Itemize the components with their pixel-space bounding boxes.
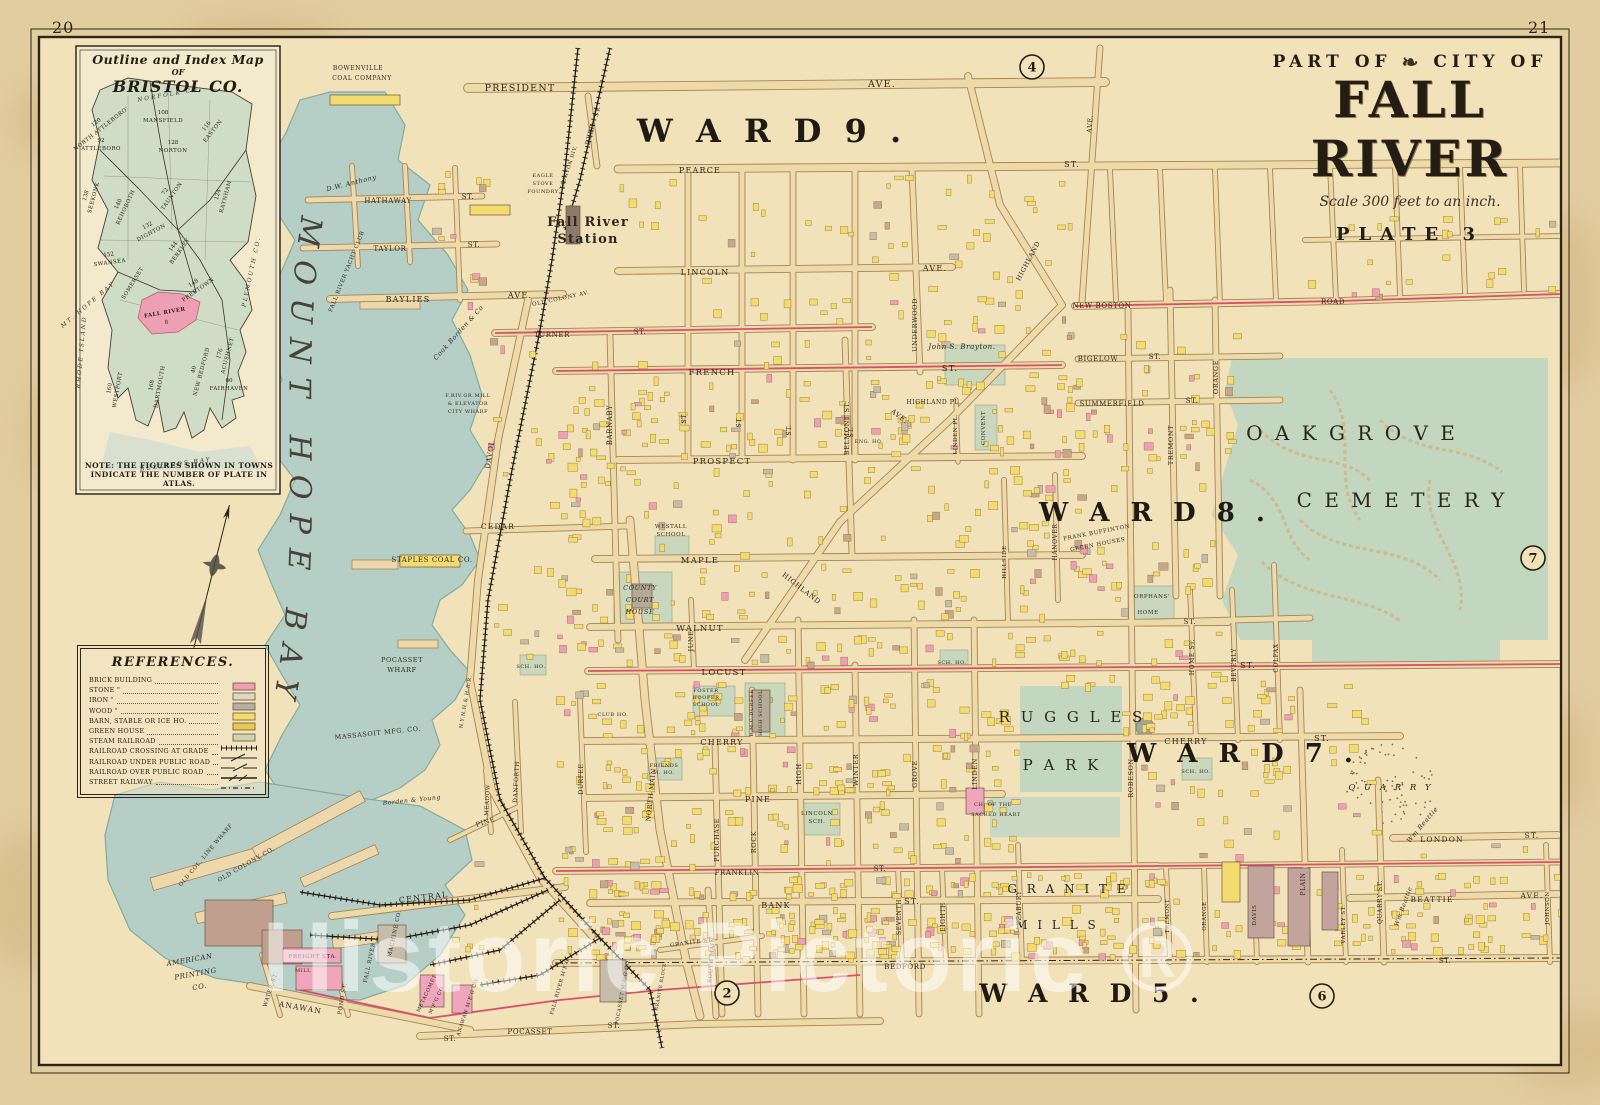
title-part2: CITY OF — [1433, 52, 1547, 72]
inset-title: Outline and Index Map OF BRISTOL CO. — [88, 52, 268, 96]
map-label: SCH. HO. — [937, 660, 966, 666]
area-label: G R A N I T E — [1007, 882, 1128, 896]
inset-map: NORTH ATTLEBORO'120MANSFIELD108EASTON116… — [59, 46, 280, 494]
reference-leader — [212, 748, 218, 755]
map-label: BOWENVILLE — [333, 65, 383, 72]
map-label: ROCK — [750, 831, 758, 853]
map-label: ST. — [634, 328, 646, 336]
map-label: AVE. — [1519, 891, 1543, 900]
map-label: JOHNSON — [1545, 891, 1551, 926]
map-label: ROAD — [1321, 298, 1345, 306]
map-label: ENG. HO. — [855, 439, 884, 445]
page-number-left: 20 — [52, 18, 74, 37]
map-label: John S. Brayton. — [926, 343, 995, 351]
map-scale-note: Scale 300 feet to an inch. — [1255, 194, 1565, 210]
map-label: PEARCE — [679, 166, 721, 175]
map-label: ST. — [444, 1035, 456, 1043]
map-label: HOME — [1137, 610, 1158, 616]
map-label: FOUNDRY — [527, 189, 558, 195]
map-label: SCH. HO. — [1181, 769, 1210, 775]
map-label: ST. — [736, 417, 743, 428]
title-part1: PART OF — [1273, 52, 1392, 72]
map-label: COURT — [626, 596, 654, 604]
map-label: WESTALL — [655, 524, 687, 530]
map-label: ST. — [1524, 831, 1539, 840]
reference-symbol-cross — [221, 747, 257, 756]
map-label: ST. — [681, 413, 688, 424]
references-rows: BRICK BUILDINGSTONE "IRON "WOOD "BARN, S… — [89, 675, 257, 787]
map-label: F.RIV.GR.MILL — [445, 393, 490, 399]
map-label: AVE. — [922, 264, 947, 273]
map-label: EIGHTH — [940, 902, 947, 932]
map-label: COLFAX — [1273, 643, 1280, 672]
page-number-right: 21 — [1528, 18, 1550, 37]
map-label: CLUB HO. — [598, 712, 629, 718]
map-label: TURNER — [534, 331, 570, 339]
map-label: ST. — [942, 364, 959, 374]
map-label: HOUSE — [625, 608, 655, 616]
map-label: PURCHASE — [713, 818, 721, 862]
map-label: FRENCH — [688, 368, 735, 378]
map-label: AVE. — [867, 79, 896, 90]
map-label: SUMMERFIELD — [1079, 400, 1144, 408]
map-label: ST. — [1439, 957, 1451, 965]
plate-link-number: 4 — [1027, 61, 1036, 76]
map-label: SCH. — [809, 819, 826, 825]
reference-symbol-swatch — [221, 716, 257, 725]
map-label: HOOPER — [693, 695, 720, 701]
map-label: SCHOOL — [693, 702, 720, 708]
area-label: O A K G R O V E — [1246, 421, 1458, 445]
map-label: SEVENTH — [896, 899, 903, 935]
map-label: ORANGE — [1202, 901, 1208, 930]
map-label: AVE. — [1085, 114, 1095, 134]
reference-symbol-dash — [221, 777, 257, 786]
map-label: STOVE — [532, 181, 553, 187]
map-label: HOME ST. — [1189, 639, 1196, 676]
map-label: JUNE — [687, 631, 695, 653]
reference-leader — [189, 717, 218, 724]
map-label: B.M.C.DURFEE — [749, 689, 755, 736]
map-label: CEDAR — [481, 522, 515, 531]
map-label: ST. — [786, 425, 793, 436]
inset-town-label: MANSFIELD — [143, 118, 183, 124]
map-label: ST. — [462, 193, 474, 201]
map-label: BANK — [761, 901, 790, 910]
map-title-row: PART OF ❧ CITY OF — [1255, 52, 1565, 72]
inset-town-plate: 108 — [158, 110, 169, 116]
map-label: TAYLOR — [374, 245, 407, 253]
inset-note: NOTE: THE FIGURES SHOWN IN TOWNS INDICAT… — [84, 461, 274, 488]
map-label: HIGHLAND PL. — [906, 399, 961, 406]
map-label: CITY WHARF — [448, 409, 488, 415]
reference-symbol-rail — [221, 737, 257, 746]
reference-leader — [156, 778, 218, 785]
map-label: ORPHANS' — [1134, 594, 1170, 600]
inset-town-plate: 60 — [225, 378, 233, 384]
map-label: LINCOLN — [801, 811, 833, 817]
map-label: COUNTY — [623, 584, 657, 592]
reference-item: WOOD " — [89, 706, 257, 716]
map-label: Station — [557, 232, 618, 247]
inset-note-line2: INDICATE THE NUMBER OF PLATE IN ATLAS. — [84, 470, 274, 488]
ward-label: W A R D 7 . — [1126, 739, 1359, 769]
inset-town-plate: 92 — [97, 138, 105, 144]
reference-leader — [121, 707, 218, 714]
map-label: SCH. HO. — [516, 664, 545, 670]
map-label: HIGH — [795, 763, 803, 785]
inset-title-line2: OF — [88, 67, 268, 77]
map-label: FRANKLIN — [715, 869, 760, 877]
map-label: ST. — [874, 865, 886, 873]
map-label: BEATTIE — [1411, 895, 1454, 904]
inset-note-line1: NOTE: THE FIGURES SHOWN IN TOWNS — [84, 461, 274, 470]
references-legend: REFERENCES. BRICK BUILDINGSTONE "IRON "W… — [80, 648, 266, 795]
map-label: BIGELOW — [1078, 355, 1119, 363]
reference-leader — [117, 697, 218, 704]
reference-symbol-over — [221, 767, 257, 776]
map-label: LINDEN — [971, 758, 979, 790]
references-title: REFERENCES. — [89, 655, 257, 670]
map-label: ST. — [1064, 160, 1080, 169]
map-label: POCASSET — [508, 1028, 553, 1036]
atlas-page: MOUNT HOPE BAYPRESIDENTAVE.PEARCEST.HATH… — [0, 0, 1600, 1105]
inset-town-label: FAIRHAVEN — [210, 386, 249, 392]
reference-item: STONE " — [89, 685, 257, 695]
map-label: CHERRY — [700, 738, 743, 747]
map-label: WALNUT — [676, 624, 724, 634]
reference-item: BRICK BUILDING — [89, 675, 257, 685]
ward-label: W A R D 5 . — [978, 979, 1205, 1008]
reference-item: GREEN HOUSE — [89, 726, 257, 736]
area-label: Q U A R R Y — [1348, 783, 1433, 793]
reference-leader — [207, 768, 218, 775]
reference-item: STEAM RAILROAD — [89, 736, 257, 746]
reference-item: IRON " — [89, 695, 257, 705]
plate-number-label: PLATE 3 — [1255, 224, 1565, 245]
reference-label: STEAM RAILROAD — [89, 737, 156, 745]
map-label: CONVENT — [981, 411, 987, 445]
map-label: & ELEVATOR — [448, 401, 488, 407]
map-label: LINDEN PL. — [953, 414, 959, 455]
inset-town-label: NORTON — [159, 148, 188, 154]
map-label: FRIENDS — [650, 763, 679, 769]
reference-symbol-swatch — [221, 727, 257, 736]
plate-link-number: 2 — [722, 987, 731, 1002]
map-label: UNDERWOOD — [911, 298, 919, 352]
map-label: M. HO. — [653, 770, 675, 776]
map-label: PLAIN — [1300, 873, 1307, 896]
map-label: ST. — [1149, 353, 1161, 361]
reference-leader — [213, 758, 218, 765]
map-label: Fall River — [547, 215, 629, 230]
map-label: HIGH SCHOOL — [758, 690, 764, 736]
reference-symbol-swatch — [221, 686, 257, 695]
map-label: ST. — [1240, 661, 1256, 670]
map-label: TREMONT — [1167, 425, 1175, 465]
map-title-block: PART OF ❧ CITY OF FALL RIVER Scale 300 f… — [1255, 52, 1565, 245]
reference-label: RAILROAD CROSSING AT GRADE — [89, 747, 209, 755]
reference-item: RAILROAD OVER PUBLIC ROAD — [89, 767, 257, 777]
map-label: MAPLE — [681, 556, 719, 566]
map-label: SACRED HEART — [971, 812, 1021, 818]
map-label: COAL COMPANY — [332, 75, 392, 82]
map-label: BEDFORD — [884, 963, 926, 971]
reference-label: GREEN HOUSE — [89, 727, 144, 735]
map-label: HANOVER — [1052, 523, 1059, 560]
reference-label: STREET RAILWAY — [89, 778, 153, 786]
inset-title-line3: BRISTOL CO. — [88, 77, 268, 96]
reference-label: BARN, STABLE OR ICE HO. — [89, 717, 186, 725]
map-label: POCASSET — [381, 656, 423, 664]
map-title-city: FALL RIVER — [1255, 70, 1565, 188]
reference-symbol-swatch — [221, 696, 257, 705]
reference-item: STREET RAILWAY — [89, 777, 257, 787]
map-label: HATHAWAY — [364, 197, 411, 205]
map-label: MILL — [295, 968, 311, 974]
reference-label: WOOD " — [89, 707, 118, 715]
map-label: PROSPECT — [693, 457, 752, 467]
plate-link-number: 7 — [1528, 552, 1537, 567]
area-label: M I L L S — [1015, 918, 1098, 932]
map-label: BARNABY — [606, 405, 614, 446]
map-label: STAPLES COAL CO. — [391, 556, 472, 564]
map-label: NEW BOSTON — [1073, 302, 1132, 310]
area-label: C E M E T E R Y — [1297, 488, 1508, 512]
reference-leader — [159, 738, 218, 745]
map-label: FOSTER — [693, 688, 718, 694]
reference-label: STONE " — [89, 686, 120, 694]
reference-label: IRON " — [89, 696, 114, 704]
map-label: LINCOLN — [681, 268, 730, 277]
reference-symbol-swatch — [221, 706, 257, 715]
map-label: LOCUST — [702, 668, 747, 678]
reference-label: BRICK BUILDING — [89, 676, 152, 684]
plate-link-number: 6 — [1317, 990, 1326, 1005]
reference-leader — [123, 687, 218, 694]
map-label: LONDON — [1420, 835, 1464, 844]
map-label: BEVERLY — [1231, 648, 1238, 682]
reference-label: RAILROAD UNDER PUBLIC ROAD — [89, 758, 210, 766]
map-label: GROVE — [911, 760, 919, 788]
reference-item: BARN, STABLE OR ICE HO. — [89, 716, 257, 726]
map-label: BELMONT ST. — [843, 401, 851, 455]
map-label: ST. — [1186, 397, 1198, 405]
map-label: HILLSIDE — [1002, 545, 1008, 578]
map-label: ST. — [468, 241, 480, 249]
reference-leader — [155, 677, 218, 684]
reference-label: RAILROAD OVER PUBLIC ROAD — [89, 768, 204, 776]
map-label: VARLEY ST. — [1341, 904, 1347, 944]
reference-leader — [147, 728, 218, 735]
reference-symbol-swatch — [221, 676, 257, 685]
reference-item: RAILROAD UNDER PUBLIC ROAD — [89, 757, 257, 767]
ward-label: W A R D 9 . — [636, 112, 907, 150]
flourish-icon: ❧ — [1402, 57, 1424, 67]
map-label: PINE — [745, 795, 771, 804]
map-label: DURFEE — [578, 764, 585, 795]
map-label: DAVIS — [1252, 904, 1258, 925]
map-label: AVE. — [507, 291, 532, 300]
map-label: TREMONT — [1165, 899, 1171, 934]
map-label: FREIGHT STA. — [289, 954, 338, 960]
map-label: BAYLIES — [386, 295, 431, 304]
inset-town-label: ATTLEBORO — [80, 146, 121, 152]
inset-title-line1: Outline and Index Map — [88, 52, 268, 67]
map-label: WHARF — [387, 666, 416, 674]
map-label: CH. OF THE — [974, 802, 1012, 808]
map-label: ORANGE — [1212, 360, 1220, 394]
map-label: ST. — [1184, 618, 1196, 626]
map-label: PRESIDENT — [485, 83, 556, 94]
area-label: R U G G L E S — [999, 708, 1146, 726]
map-label: SCHOOL — [656, 532, 685, 538]
map-label: QUARRY ST. — [1377, 880, 1384, 924]
inset-town-plate: 128 — [168, 140, 179, 146]
area-label: P A R K — [1023, 756, 1102, 774]
reference-item: RAILROAD CROSSING AT GRADE — [89, 746, 257, 756]
map-label: WINTER — [852, 753, 860, 786]
ward-label: W A R D 8 . — [1038, 498, 1271, 528]
reference-symbol-under — [221, 757, 257, 766]
map-label: EAGLE — [532, 173, 553, 179]
map-label: ST. — [904, 897, 920, 906]
